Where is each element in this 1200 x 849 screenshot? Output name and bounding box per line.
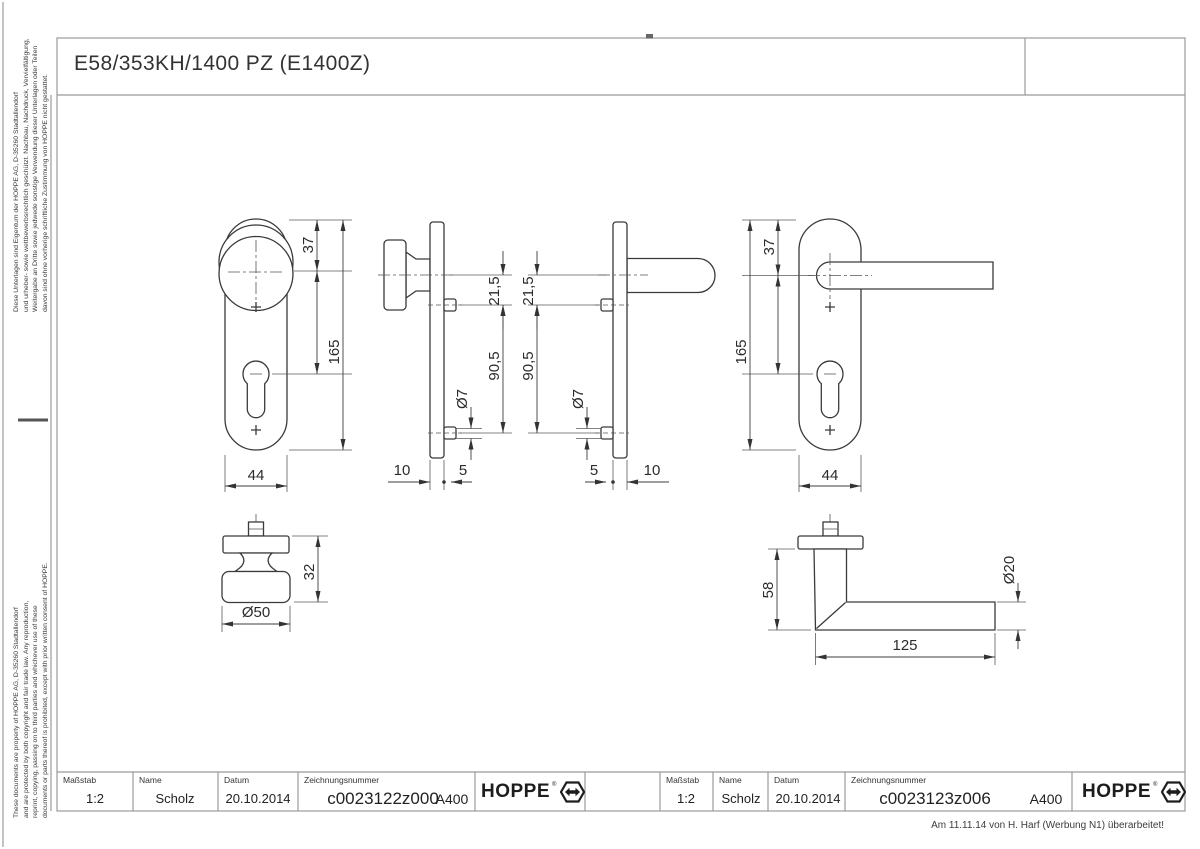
drawing-number-value: c0023123z006	[879, 789, 991, 809]
revision-note: Am 11.11.14 von H. Harf (Werbung N1) übe…	[931, 820, 1164, 831]
dim-lever-side-projection: 10	[644, 462, 661, 479]
legal-line: reprint, copying, passing on to third pa…	[31, 578, 41, 818]
dim-knob-side-projection: 10	[394, 462, 411, 479]
hoppe-hexagon-arrow-icon	[560, 781, 585, 803]
date-value: 20.10.2014	[225, 791, 290, 806]
dim-lever-height: 58	[760, 582, 777, 599]
name-value: Scholz	[155, 791, 194, 806]
dim-knob-side-hole-dia: Ø7	[454, 389, 471, 409]
legal-note-english: These documents are property of HOPPE AG…	[12, 578, 50, 818]
registered-mark: ®	[552, 782, 556, 788]
dim-knob-plate-length: 165	[326, 339, 343, 364]
view-knob-profile: 32 Ø50	[222, 514, 328, 632]
date-label: Datum	[224, 775, 249, 785]
registered-mark: ®	[1153, 782, 1157, 788]
hoppe-logo: HOPPE®	[481, 781, 585, 803]
dim-lever-side-hole-dia: Ø7	[570, 389, 587, 409]
date-label: Datum	[774, 775, 799, 785]
drawing-number-label: Zeichnungsnummer	[304, 775, 379, 785]
drawing-sheet: .obj{fill:none;stroke:#3a3a3a;stroke-wid…	[0, 0, 1200, 849]
drawing-number-label: Zeichnungsnummer	[851, 775, 926, 785]
legal-line: und urheber- sowie wettbewerbsrechtlich …	[22, 12, 32, 312]
drawing-number-value: c0023122z000	[327, 789, 439, 809]
hoppe-wordmark: HOPPE	[1082, 781, 1151, 803]
fold-mark-top	[646, 34, 653, 39]
dim-knob-plate-offset-top: 37	[300, 237, 317, 254]
date-value: 20.10.2014	[775, 791, 840, 806]
name-value: Scholz	[721, 791, 760, 806]
dim-lever-plate-width: 44	[822, 467, 839, 484]
dim-knob-side-center-to-hole: 21,5	[486, 276, 503, 305]
dim-knob-height: 32	[301, 564, 318, 581]
dim-lever-length: 125	[892, 637, 917, 654]
sheet-frame	[3, 2, 1185, 847]
page-title: E58/353KH/1400 PZ (E1400Z)	[74, 52, 370, 76]
view-knob-plate-side: 21,5 90,5 Ø7 10 5	[378, 222, 512, 490]
dim-knob-dia: Ø50	[242, 604, 270, 621]
view-lever-plate-front: 37 165 44	[733, 219, 993, 492]
view-knob-plate-front: 37 165 44	[219, 219, 352, 492]
legal-line: and are protected by both copyright and …	[22, 578, 32, 818]
dim-lever-side-center-to-hole: 21,5	[520, 276, 537, 305]
name-label: Name	[719, 775, 742, 785]
view-lever-plate-side: 21,5 90,5 Ø7 5 10	[520, 222, 715, 490]
format-code: A400	[436, 791, 469, 807]
hoppe-hexagon-arrow-icon	[1161, 781, 1186, 803]
fold-mark-left	[18, 419, 48, 422]
legal-note-german: Diese Unterlagen sind Eigentum der HOPPE…	[12, 12, 50, 312]
scale-label: Maßstab	[63, 775, 96, 785]
legal-line: documents or parts thereof is prohibited…	[41, 578, 51, 818]
hoppe-wordmark: HOPPE	[481, 781, 550, 803]
scale-value: 1:2	[86, 791, 104, 806]
name-label: Name	[139, 775, 162, 785]
legal-line: These documents are property of HOPPE AG…	[12, 578, 22, 818]
legal-line: davon sind ohne vorherige schriftliche Z…	[41, 12, 51, 312]
dim-knob-side-hole-spacing: 90,5	[486, 351, 503, 380]
hoppe-logo: HOPPE®	[1082, 781, 1186, 803]
scale-label: Maßstab	[666, 775, 699, 785]
dim-lever-side-plate-depth: 5	[590, 462, 598, 479]
dim-knob-side-plate-depth: 5	[459, 462, 467, 479]
dim-knob-plate-width: 44	[248, 467, 265, 484]
dim-lever-dia: Ø20	[1001, 556, 1018, 584]
dim-lever-plate-offset-top: 37	[761, 239, 778, 256]
view-lever-profile: 58 125 Ø20	[760, 514, 1026, 665]
format-code: A400	[1030, 791, 1063, 807]
dim-lever-side-hole-spacing: 90,5	[520, 351, 537, 380]
dim-lever-plate-length: 165	[733, 339, 750, 364]
legal-line: Weitergabe an Dritte sowie jedwede sonst…	[31, 12, 41, 312]
technical-drawing-canvas: .obj{fill:none;stroke:#3a3a3a;stroke-wid…	[0, 0, 1200, 849]
scale-value: 1:2	[677, 791, 695, 806]
legal-line: Diese Unterlagen sind Eigentum der HOPPE…	[12, 12, 22, 312]
